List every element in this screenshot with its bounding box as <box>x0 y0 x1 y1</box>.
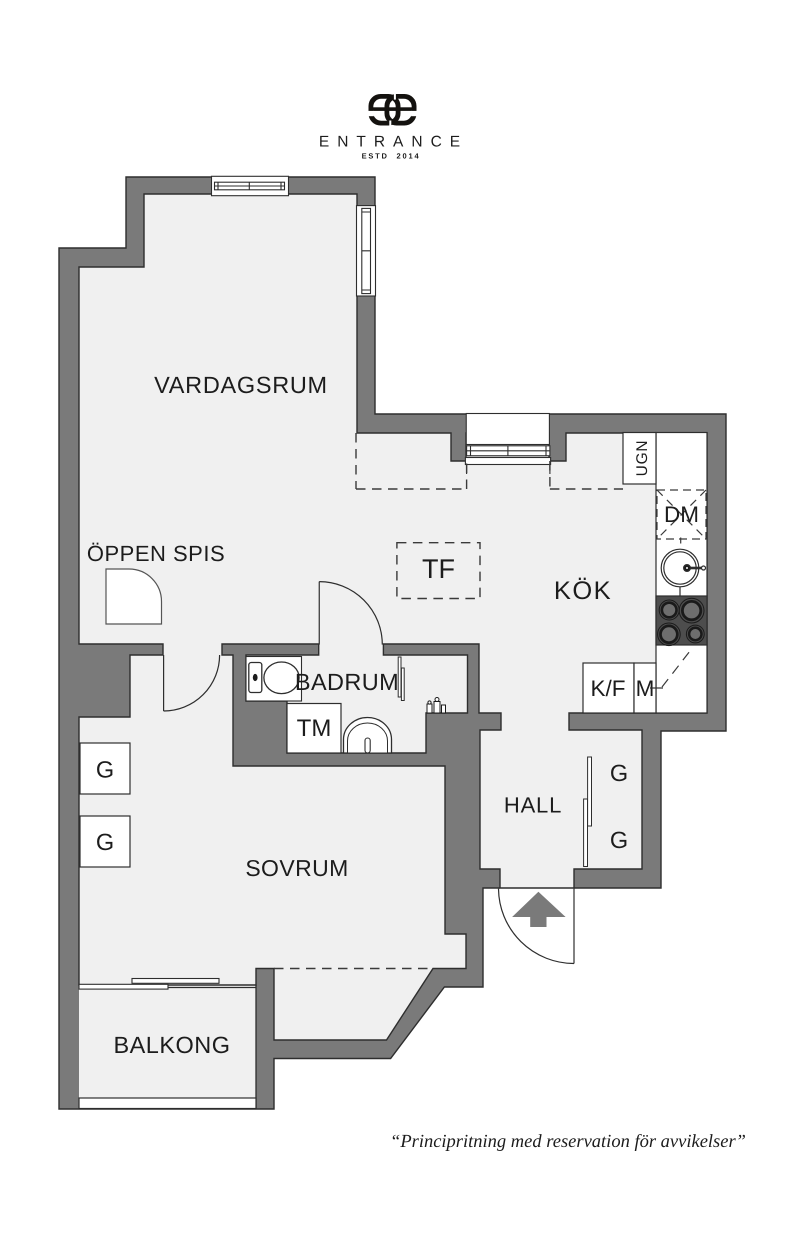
svg-text:TF: TF <box>422 554 455 584</box>
svg-text:G: G <box>96 757 114 783</box>
svg-text:K/F: K/F <box>590 676 625 701</box>
svg-text:G: G <box>610 760 628 786</box>
svg-text:ESTD 2014: ESTD 2014 <box>362 152 421 161</box>
svg-text:SOVRUM: SOVRUM <box>245 855 348 881</box>
svg-text:ENTRANCE: ENTRANCE <box>319 134 468 151</box>
svg-text:TM: TM <box>297 715 332 742</box>
svg-text:BALKONG: BALKONG <box>113 1032 230 1058</box>
svg-text:VARDAGSRUM: VARDAGSRUM <box>154 372 328 398</box>
svg-text:DM: DM <box>664 502 699 527</box>
svg-text:G: G <box>610 827 628 853</box>
svg-text:KÖK: KÖK <box>554 577 612 605</box>
svg-text:HALL: HALL <box>504 793 562 818</box>
svg-text:ÖPPEN SPIS: ÖPPEN SPIS <box>87 541 225 566</box>
svg-text:BADRUM: BADRUM <box>295 669 399 695</box>
svg-text:UGN: UGN <box>634 440 651 477</box>
svg-text:G: G <box>96 829 114 855</box>
svg-text:“Principritning med reservatio: “Principritning med reservation för avvi… <box>390 1132 746 1152</box>
